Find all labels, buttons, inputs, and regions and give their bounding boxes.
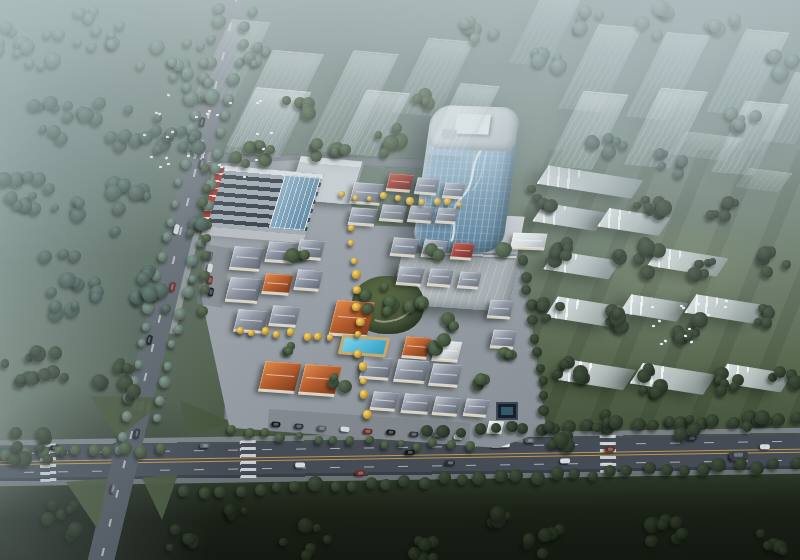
tree	[444, 198, 451, 205]
lawn-light-patch	[600, 220, 770, 310]
tree	[613, 308, 623, 318]
tree	[561, 237, 573, 249]
tree	[752, 417, 762, 427]
tree	[129, 185, 144, 200]
tree	[544, 421, 555, 432]
tree	[475, 423, 487, 435]
ghost-tower	[193, 19, 271, 101]
tree	[106, 185, 121, 200]
mall-red-accent	[200, 167, 224, 224]
tree	[89, 444, 101, 456]
tree	[653, 379, 667, 393]
tree	[686, 415, 694, 423]
tree	[154, 283, 169, 298]
bird	[262, 148, 265, 151]
tree	[314, 333, 321, 340]
tree	[60, 272, 76, 288]
tree	[705, 19, 717, 31]
tree	[116, 21, 125, 30]
tree	[711, 22, 726, 37]
tree	[495, 242, 511, 258]
house-grey-roof	[348, 207, 378, 225]
tree	[153, 414, 161, 422]
house-white-roof	[510, 232, 547, 248]
house-red-roof	[450, 242, 475, 258]
tree	[674, 427, 688, 441]
tree	[487, 517, 498, 528]
tree	[447, 440, 456, 449]
tree	[674, 168, 684, 178]
tree	[64, 101, 73, 110]
car	[169, 281, 176, 292]
tree	[311, 138, 323, 150]
tree	[217, 127, 227, 137]
tree	[527, 185, 536, 194]
tree	[659, 514, 672, 527]
tree	[41, 512, 54, 525]
tree	[189, 135, 197, 143]
tree	[183, 83, 192, 92]
bird	[658, 319, 661, 322]
tree	[560, 359, 570, 369]
car	[199, 158, 206, 169]
tree	[31, 345, 42, 356]
tree	[456, 428, 466, 438]
tree	[255, 484, 267, 496]
tree	[603, 145, 617, 159]
tree	[32, 172, 46, 186]
tree	[78, 107, 94, 123]
tree	[338, 380, 352, 394]
bird	[690, 340, 693, 343]
car	[560, 458, 570, 463]
tree	[360, 390, 368, 398]
tree	[715, 367, 728, 380]
tree	[774, 366, 786, 378]
tree	[323, 535, 332, 544]
tree	[181, 159, 191, 169]
tree	[537, 300, 549, 312]
bird	[155, 112, 158, 114]
tree	[532, 53, 547, 68]
tree	[696, 260, 704, 268]
ghost-slab-building	[532, 203, 607, 231]
tree	[15, 36, 30, 51]
tree	[12, 441, 23, 452]
tree	[99, 377, 109, 387]
ghost-slab-building	[558, 360, 636, 391]
house-grey-roof	[414, 177, 440, 193]
access-road	[510, 258, 547, 434]
tree	[521, 285, 531, 295]
tree	[670, 516, 682, 528]
tree	[100, 380, 109, 389]
tree	[679, 465, 690, 476]
tree	[660, 150, 668, 158]
tree	[331, 481, 341, 491]
tree	[539, 376, 548, 385]
tree	[184, 91, 199, 106]
tree	[252, 140, 266, 154]
tree	[763, 307, 775, 319]
tree	[154, 114, 162, 122]
tree	[730, 13, 741, 24]
tree	[228, 73, 239, 84]
tree	[119, 129, 132, 142]
parked-car	[207, 263, 213, 273]
layer-site	[0, 0, 800, 560]
tree	[1, 359, 10, 368]
tree	[560, 438, 575, 453]
tree	[600, 422, 612, 434]
bird	[680, 305, 683, 307]
tree	[18, 197, 32, 211]
tree	[295, 251, 305, 261]
parked-car	[317, 425, 326, 430]
tree	[244, 51, 256, 63]
parking-strip-south	[267, 409, 470, 445]
tree	[662, 9, 671, 18]
ghost-tower	[392, 37, 474, 116]
tree	[750, 110, 762, 122]
tree	[236, 486, 247, 497]
bird	[225, 169, 228, 171]
tree	[632, 418, 645, 431]
tree	[721, 201, 732, 212]
bird	[220, 166, 223, 168]
tree	[182, 533, 193, 544]
tree	[113, 362, 125, 374]
tree	[48, 125, 61, 138]
tree	[353, 286, 361, 294]
parked-car	[207, 251, 213, 261]
tree	[72, 301, 80, 309]
car	[760, 444, 770, 449]
house-grey-roof	[442, 182, 465, 197]
house-grey-roof	[487, 299, 514, 317]
ghost-slab-building	[684, 294, 765, 323]
car	[355, 470, 365, 475]
office-tower	[412, 105, 522, 254]
tree	[672, 325, 685, 338]
bird	[684, 334, 687, 336]
tree	[130, 290, 144, 304]
tree	[60, 449, 67, 456]
tree	[137, 272, 150, 285]
house-grey-roof	[296, 239, 325, 258]
tree	[272, 482, 282, 492]
tree	[688, 322, 695, 329]
tree	[22, 371, 34, 383]
tree	[156, 443, 167, 454]
tree	[170, 72, 179, 81]
tree	[383, 306, 392, 315]
tree	[179, 141, 189, 151]
tree	[175, 178, 184, 187]
tree	[201, 285, 211, 295]
tree	[135, 360, 144, 369]
tree	[201, 164, 210, 173]
vignette	[0, 0, 800, 560]
tree	[643, 363, 654, 374]
tree	[733, 21, 742, 30]
tree	[8, 452, 22, 466]
tree	[142, 268, 154, 280]
tree	[457, 202, 462, 207]
pool-water	[341, 338, 386, 355]
main-road	[0, 428, 800, 487]
tree	[9, 28, 17, 36]
tree	[521, 272, 532, 283]
tree	[28, 99, 41, 112]
tree	[301, 106, 315, 120]
tree	[658, 4, 672, 18]
tree	[413, 443, 421, 451]
tree	[647, 247, 656, 256]
layer-ghost-towers	[0, 0, 800, 560]
car	[115, 454, 125, 459]
tree	[619, 141, 628, 150]
tower-roof	[428, 105, 520, 152]
tree	[347, 481, 358, 492]
tree	[433, 249, 445, 261]
tree	[197, 239, 206, 248]
tree	[533, 194, 542, 203]
tree	[362, 303, 374, 315]
tree	[429, 342, 443, 356]
tree	[613, 416, 624, 427]
main-road-dashes-lower	[0, 460, 800, 474]
tree	[204, 78, 214, 88]
tree	[579, 372, 591, 384]
tree	[641, 196, 650, 205]
tree	[560, 250, 572, 262]
tree	[249, 7, 258, 16]
house-red-roof	[386, 173, 414, 190]
tree	[241, 159, 250, 168]
tree	[237, 327, 244, 334]
tree	[658, 162, 666, 170]
tree	[674, 416, 687, 429]
tree	[187, 255, 198, 266]
tree	[122, 411, 132, 421]
tree	[535, 47, 550, 62]
tree	[638, 237, 652, 251]
tree	[517, 423, 528, 434]
house-grey-roof	[269, 305, 301, 326]
tree	[71, 277, 81, 287]
parked-car	[409, 431, 418, 436]
tree	[158, 252, 168, 262]
house-grey-roof	[233, 309, 268, 332]
bird	[255, 159, 258, 161]
tree	[735, 458, 747, 470]
tree	[466, 441, 476, 451]
tree	[685, 332, 694, 341]
tree	[772, 413, 785, 426]
tree	[546, 527, 559, 540]
tree	[202, 251, 211, 260]
tree	[649, 387, 659, 397]
tree	[44, 96, 57, 109]
diagonal-road-center-dashes	[99, 0, 239, 560]
tree	[183, 533, 196, 546]
tree	[305, 543, 316, 554]
tree	[71, 207, 86, 222]
tree	[768, 49, 782, 63]
tree	[115, 446, 124, 455]
tree	[360, 289, 372, 301]
top-right-haze	[0, 0, 800, 560]
tree	[412, 94, 422, 104]
tree	[90, 277, 101, 288]
tree	[551, 248, 561, 258]
tree	[677, 162, 684, 169]
tree	[36, 443, 45, 452]
bird	[171, 130, 174, 133]
shopping-mall	[201, 161, 349, 246]
tree	[130, 133, 144, 147]
tree	[548, 423, 560, 435]
bird	[652, 325, 655, 327]
tree	[536, 364, 545, 373]
tree	[419, 477, 431, 489]
bird	[243, 176, 246, 178]
tree	[637, 369, 651, 383]
tree	[603, 424, 614, 435]
house-orange-roof	[262, 273, 294, 294]
tree	[143, 192, 151, 200]
tree	[227, 425, 236, 434]
tree	[551, 242, 566, 257]
tree	[603, 417, 614, 428]
bird	[150, 156, 153, 158]
tree	[203, 234, 211, 242]
tree	[72, 278, 85, 291]
tree	[706, 414, 719, 427]
house-grey-roof	[463, 398, 490, 415]
tree	[154, 145, 162, 153]
tree	[392, 133, 408, 149]
tree	[89, 6, 99, 16]
tree	[239, 21, 250, 32]
tree	[126, 365, 135, 374]
tree	[151, 40, 165, 54]
tree	[408, 547, 421, 560]
tree	[68, 522, 83, 537]
tree	[175, 308, 186, 319]
ghost-slab-building	[537, 165, 644, 198]
tree	[561, 430, 573, 442]
tree	[208, 35, 216, 43]
tree	[173, 59, 185, 71]
tree	[611, 320, 622, 331]
tree	[142, 302, 155, 315]
tree	[72, 196, 82, 206]
tree	[251, 60, 259, 68]
tree	[552, 439, 560, 447]
tree	[133, 295, 144, 306]
tree	[548, 440, 557, 449]
corner-shadow-bottom-left	[0, 380, 230, 560]
bird	[206, 112, 209, 115]
tree	[197, 219, 206, 228]
tree	[639, 239, 655, 255]
tree	[49, 346, 63, 360]
tree	[125, 393, 135, 403]
tree	[308, 476, 322, 490]
crosswalk	[600, 435, 617, 473]
bird	[216, 114, 219, 116]
tree	[339, 191, 345, 197]
tree	[495, 470, 507, 482]
tree	[651, 243, 666, 258]
tree	[273, 331, 281, 339]
tree	[23, 171, 34, 182]
tree	[425, 243, 438, 256]
tree	[479, 374, 490, 385]
tree	[709, 258, 716, 265]
tree	[116, 358, 126, 368]
tree	[206, 179, 217, 190]
tree	[121, 184, 129, 192]
tree	[436, 425, 450, 439]
ghost-slab-building	[715, 364, 792, 393]
tree	[489, 28, 500, 39]
car	[110, 483, 117, 494]
tree	[648, 420, 659, 431]
ghost-slab-building	[545, 296, 627, 327]
tree	[676, 528, 687, 539]
tree	[236, 58, 245, 67]
town-paved-base	[202, 158, 546, 448]
tree	[143, 265, 155, 277]
tree	[768, 458, 779, 469]
car	[295, 462, 305, 467]
tree	[189, 129, 202, 142]
tree	[367, 196, 372, 201]
tree	[20, 40, 34, 54]
diagonal-road-sidewalk	[169, 226, 201, 334]
tower-roof-equipment-2	[441, 129, 456, 139]
tree	[614, 319, 629, 334]
tree	[40, 432, 52, 444]
tree	[177, 126, 187, 136]
tree	[412, 302, 419, 309]
lawn-shadow-streaks	[500, 150, 800, 470]
tree	[491, 423, 502, 434]
tree	[310, 150, 322, 162]
house-grey-roof	[350, 182, 385, 204]
crosswalk	[186, 147, 212, 162]
bird	[682, 307, 685, 309]
tree	[383, 135, 399, 151]
bird	[195, 116, 198, 118]
tree	[106, 36, 121, 51]
tree	[172, 200, 180, 208]
tree	[138, 339, 146, 347]
tree	[29, 192, 37, 200]
house-grey-roof	[396, 266, 425, 284]
tree	[613, 307, 625, 319]
tree	[603, 133, 615, 145]
tree	[677, 155, 688, 166]
tree	[786, 54, 800, 68]
tree	[118, 432, 128, 442]
tree	[188, 539, 198, 549]
tree	[365, 304, 372, 311]
tree	[36, 427, 51, 442]
